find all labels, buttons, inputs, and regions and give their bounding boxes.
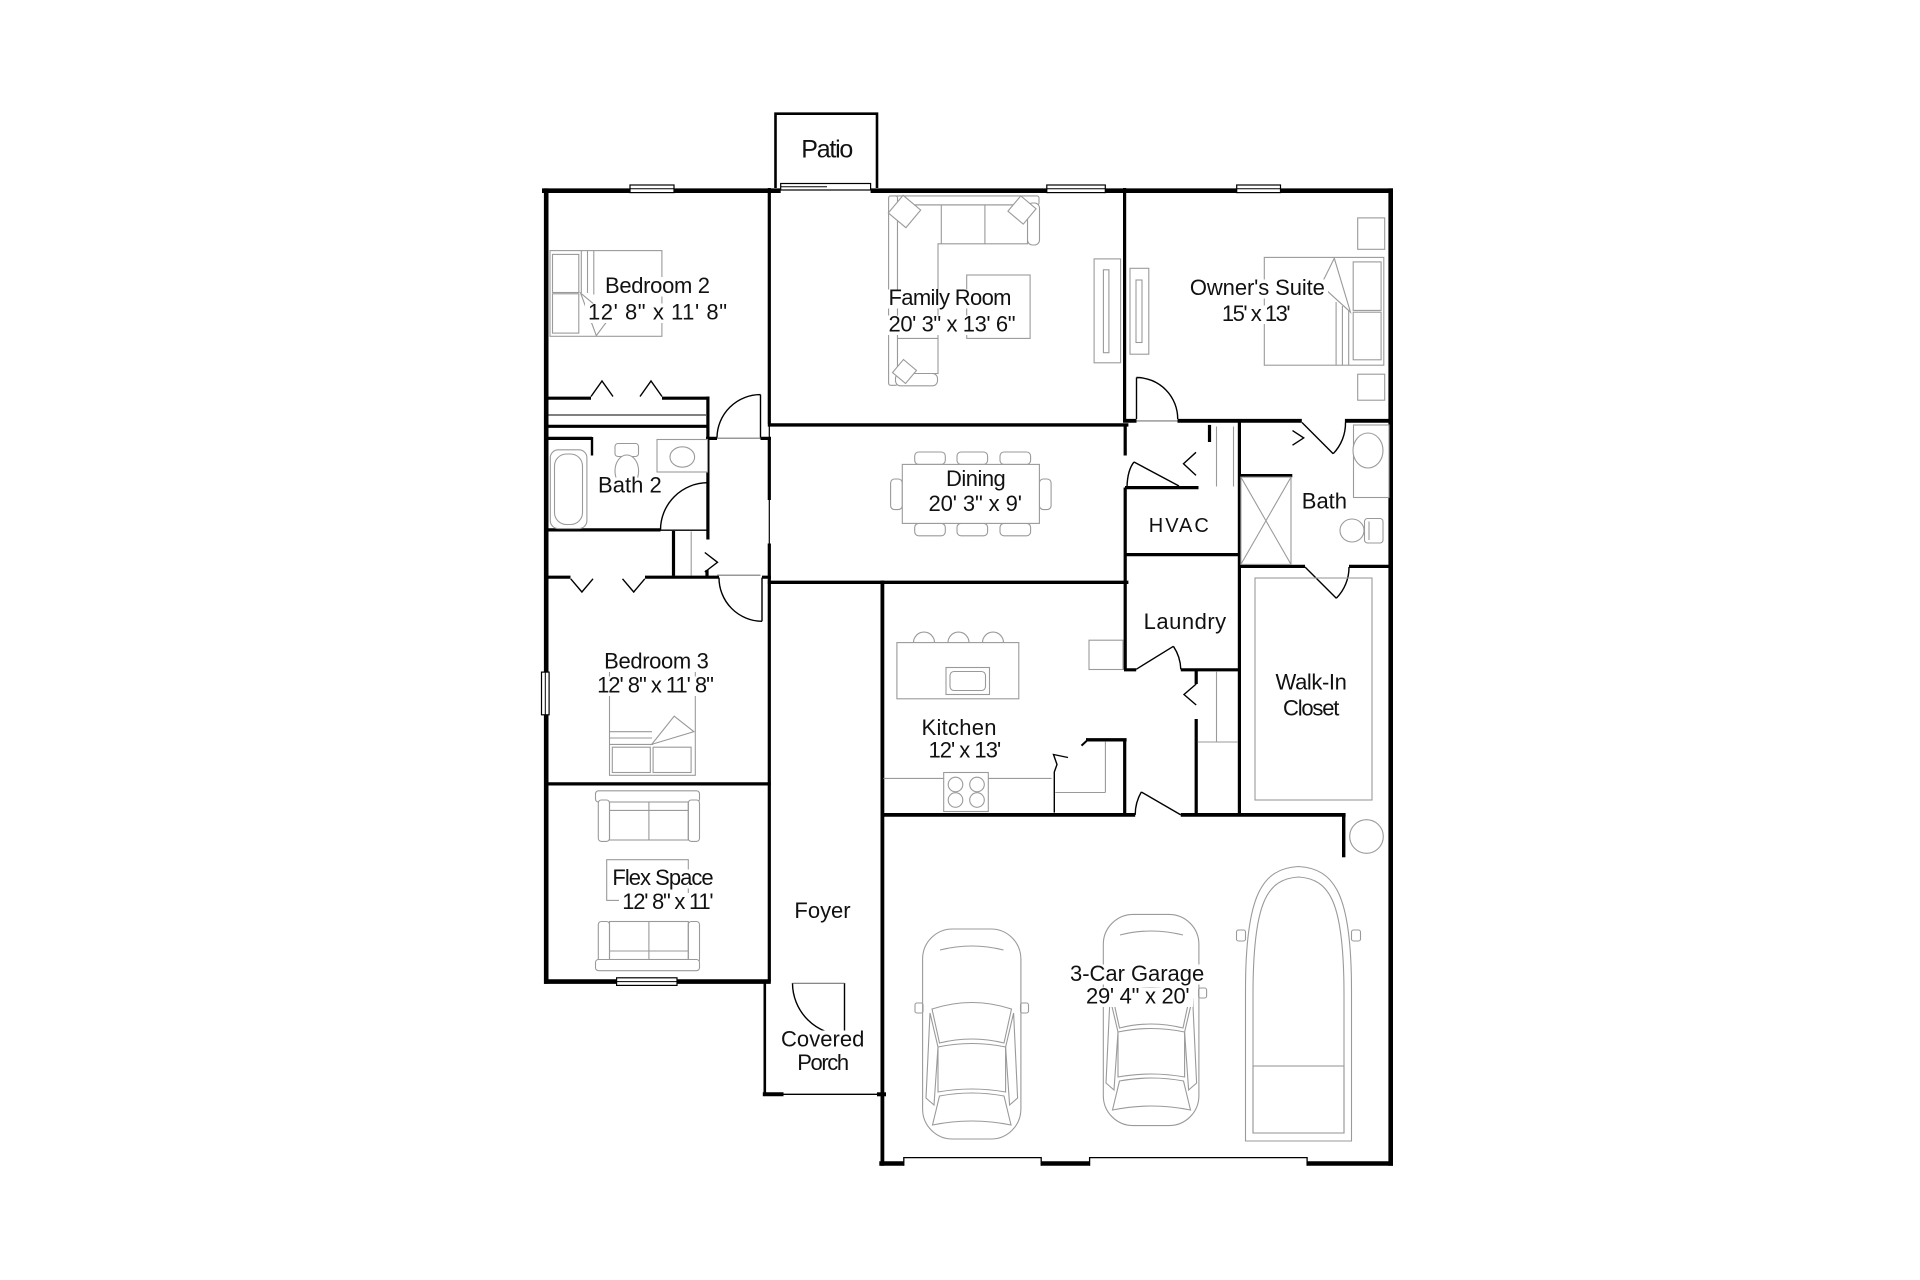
svg-text:12' 8" x 11' 8": 12' 8" x 11' 8": [588, 300, 727, 325]
svg-text:12' x 13': 12' x 13': [928, 737, 1001, 762]
svg-text:Laundry: Laundry: [1144, 609, 1227, 634]
svg-text:15' x 13': 15' x 13': [1222, 301, 1291, 326]
svg-text:Bath: Bath: [1302, 488, 1347, 513]
svg-text:Foyer: Foyer: [794, 898, 850, 923]
svg-text:29' 4" x 20': 29' 4" x 20': [1086, 983, 1190, 1008]
svg-text:Bedroom 3: Bedroom 3: [604, 648, 709, 673]
svg-text:Closet: Closet: [1283, 696, 1339, 721]
svg-text:Covered: Covered: [781, 1027, 864, 1052]
svg-text:Patio: Patio: [801, 135, 853, 163]
svg-text:Flex Space: Flex Space: [612, 865, 713, 890]
svg-text:20' 3" x 9': 20' 3" x 9': [929, 491, 1022, 516]
svg-text:Owner's Suite: Owner's Suite: [1190, 275, 1325, 300]
svg-text:Dining: Dining: [946, 466, 1006, 491]
svg-text:Bath 2: Bath 2: [598, 473, 662, 498]
svg-text:12' 8" x 11' 8": 12' 8" x 11' 8": [597, 672, 714, 697]
svg-text:HVAC: HVAC: [1149, 515, 1209, 537]
svg-text:Bedroom 2: Bedroom 2: [605, 273, 710, 298]
svg-text:12' 8" x 11': 12' 8" x 11': [622, 889, 713, 914]
svg-text:Walk-In: Walk-In: [1276, 669, 1347, 694]
svg-text:Family Room: Family Room: [889, 285, 1012, 310]
svg-text:3-Car Garage: 3-Car Garage: [1070, 961, 1204, 986]
svg-text:20' 3" x 13' 6": 20' 3" x 13' 6": [889, 312, 1016, 337]
svg-text:Porch: Porch: [797, 1050, 849, 1075]
